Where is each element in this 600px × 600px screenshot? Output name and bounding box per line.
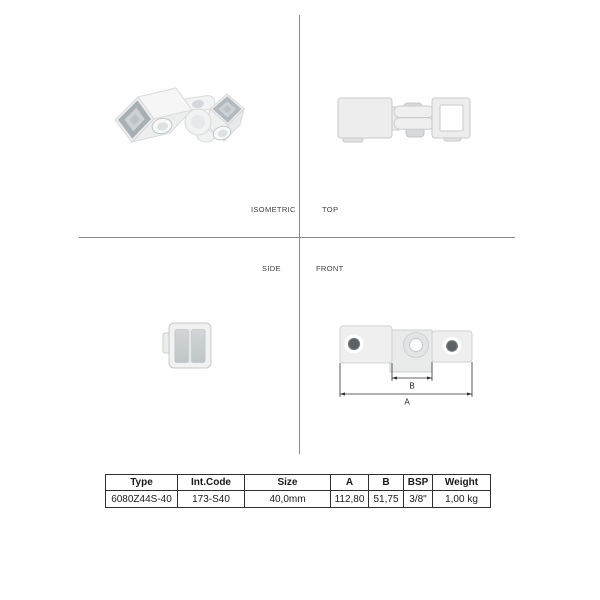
top-view-right-socket: [432, 98, 470, 141]
top-view-left-socket: [338, 98, 399, 142]
front-view-label: FRONT: [316, 265, 344, 273]
side-view-label: SIDE: [262, 265, 281, 273]
front-view-hinge-section: [390, 330, 432, 372]
front-view: B A: [334, 320, 480, 412]
dimension-b-label: B: [409, 382, 414, 391]
left-socket-3d: [115, 88, 192, 142]
drawing-sheet: ISOMETRIC TOP SIDE FRONT: [0, 0, 600, 600]
cell-int-code: 173-S40: [178, 491, 245, 508]
isometric-view-label: ISOMETRIC: [251, 206, 296, 214]
side-view-right-panel: [192, 330, 206, 363]
cell-bsp: 3/8": [404, 491, 433, 508]
cell-b: 51,75: [369, 491, 404, 508]
crosshair-vertical-line: [299, 15, 301, 454]
spec-table: Type Int.Code Size A B BSP Weight 6080Z4…: [105, 474, 491, 508]
right-screw-hole: [447, 341, 458, 352]
col-header-size: Size: [245, 475, 331, 491]
col-header-weight: Weight: [433, 475, 491, 491]
top-view: [330, 90, 480, 150]
col-header-bsp: BSP: [404, 475, 433, 491]
front-view-left-socket: [340, 326, 392, 363]
cell-weight: 1,00 kg: [433, 491, 491, 508]
side-view-left-panel: [175, 330, 189, 363]
front-view-right-socket: [432, 331, 472, 362]
top-view-hinge: [394, 103, 434, 137]
side-view: [160, 318, 218, 376]
hinge-pin-hole: [410, 339, 423, 352]
cell-type: 6080Z44S-40: [106, 491, 178, 508]
cell-size: 40,0mm: [245, 491, 331, 508]
left-screw-hole: [348, 338, 359, 349]
spec-table-data-row: 6080Z44S-40 173-S40 40,0mm 112,80 51,75 …: [106, 491, 491, 508]
cell-a: 112,80: [331, 491, 369, 508]
dimension-a-label: A: [404, 398, 410, 407]
col-header-a: A: [331, 475, 369, 491]
spec-table-header-row: Type Int.Code Size A B BSP Weight: [106, 475, 491, 491]
col-header-type: Type: [106, 475, 178, 491]
col-header-int-code: Int.Code: [178, 475, 245, 491]
col-header-b: B: [369, 475, 404, 491]
isometric-view: [105, 82, 250, 157]
crosshair-horizontal-line: [79, 237, 515, 239]
top-view-label: TOP: [322, 206, 338, 214]
